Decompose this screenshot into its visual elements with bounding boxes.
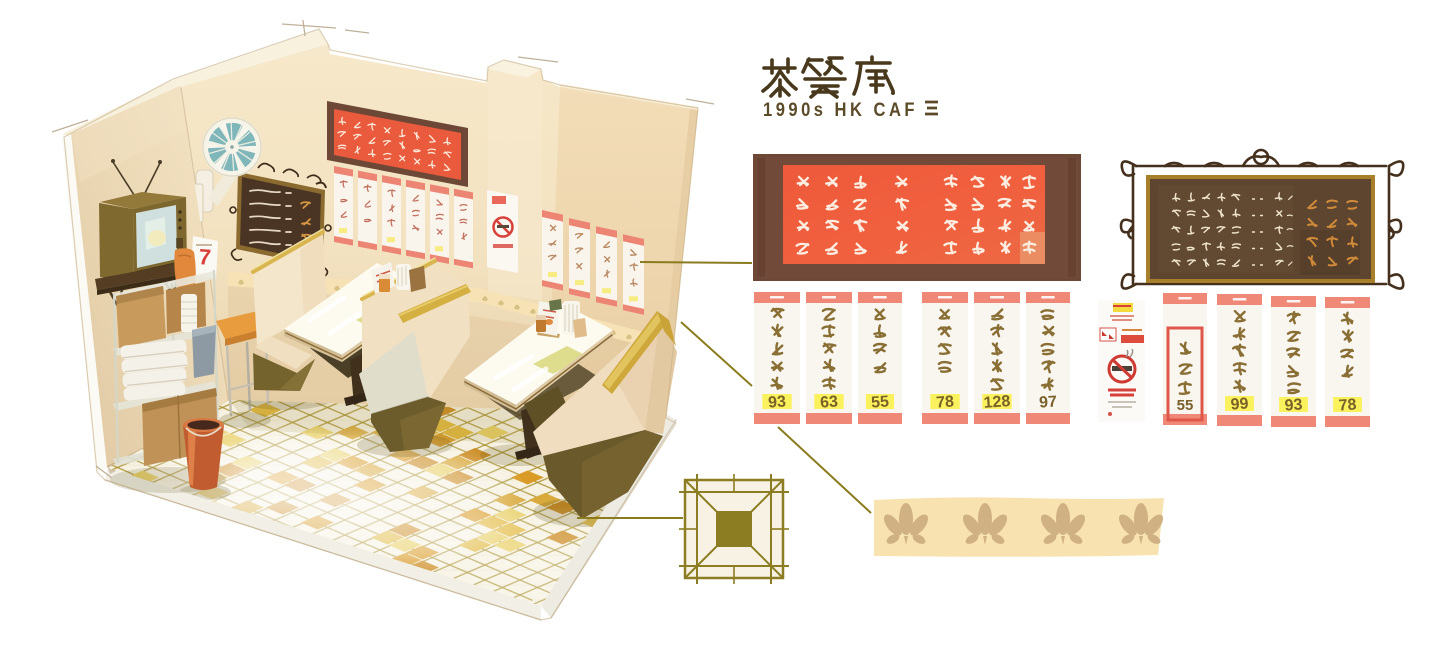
svg-text:55: 55 [1177, 397, 1194, 414]
svg-text:93: 93 [1284, 396, 1303, 414]
svg-text:55: 55 [871, 393, 890, 411]
svg-text:93: 93 [768, 393, 787, 411]
svg-text:99: 99 [1230, 395, 1249, 413]
svg-text:63: 63 [820, 393, 839, 411]
svg-text:97: 97 [1039, 393, 1058, 411]
svg-text:7: 7 [198, 244, 212, 270]
svg-text:78: 78 [1338, 396, 1357, 414]
svg-text:78: 78 [936, 393, 955, 411]
svg-text:1990s HK CAF: 1990s HK CAF [763, 100, 918, 121]
svg-text:128: 128 [983, 393, 1011, 412]
